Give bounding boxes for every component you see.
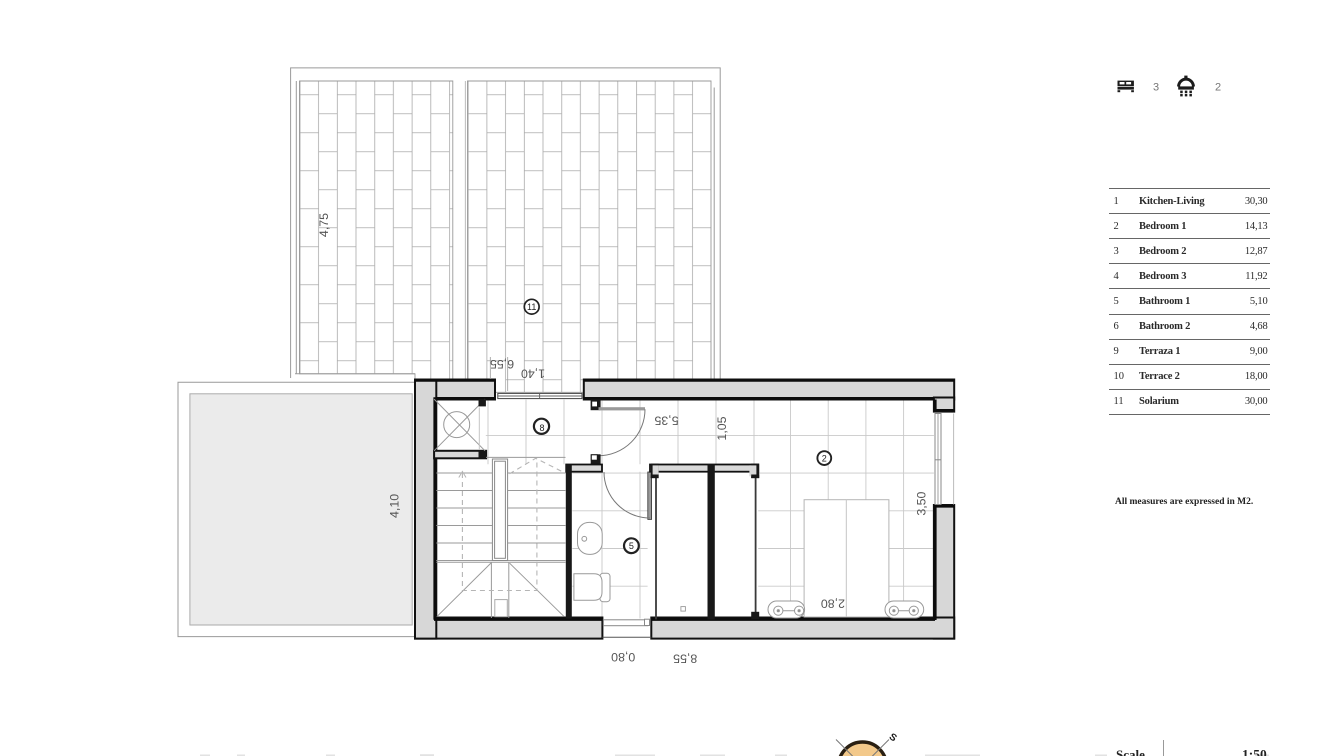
- svg-text:8,55: 8,55: [673, 652, 697, 666]
- svg-text:0,80: 0,80: [611, 650, 635, 664]
- svg-text:5,35: 5,35: [654, 414, 678, 428]
- svg-text:1,05: 1,05: [715, 416, 729, 440]
- svg-text:2: 2: [822, 453, 827, 463]
- svg-text:2: 2: [1215, 82, 1221, 94]
- svg-text:2,80: 2,80: [821, 597, 845, 611]
- svg-text:6,55: 6,55: [490, 357, 514, 371]
- svg-text:3: 3: [1153, 82, 1159, 94]
- svg-text:4,10: 4,10: [388, 494, 402, 518]
- svg-text:5: 5: [629, 541, 634, 551]
- svg-text:4,75: 4,75: [317, 213, 331, 237]
- svg-text:S: S: [887, 731, 899, 744]
- svg-text:11: 11: [527, 302, 536, 312]
- svg-text:3,50: 3,50: [915, 491, 929, 515]
- svg-text:8: 8: [539, 423, 544, 433]
- svg-text:1,40: 1,40: [521, 367, 545, 381]
